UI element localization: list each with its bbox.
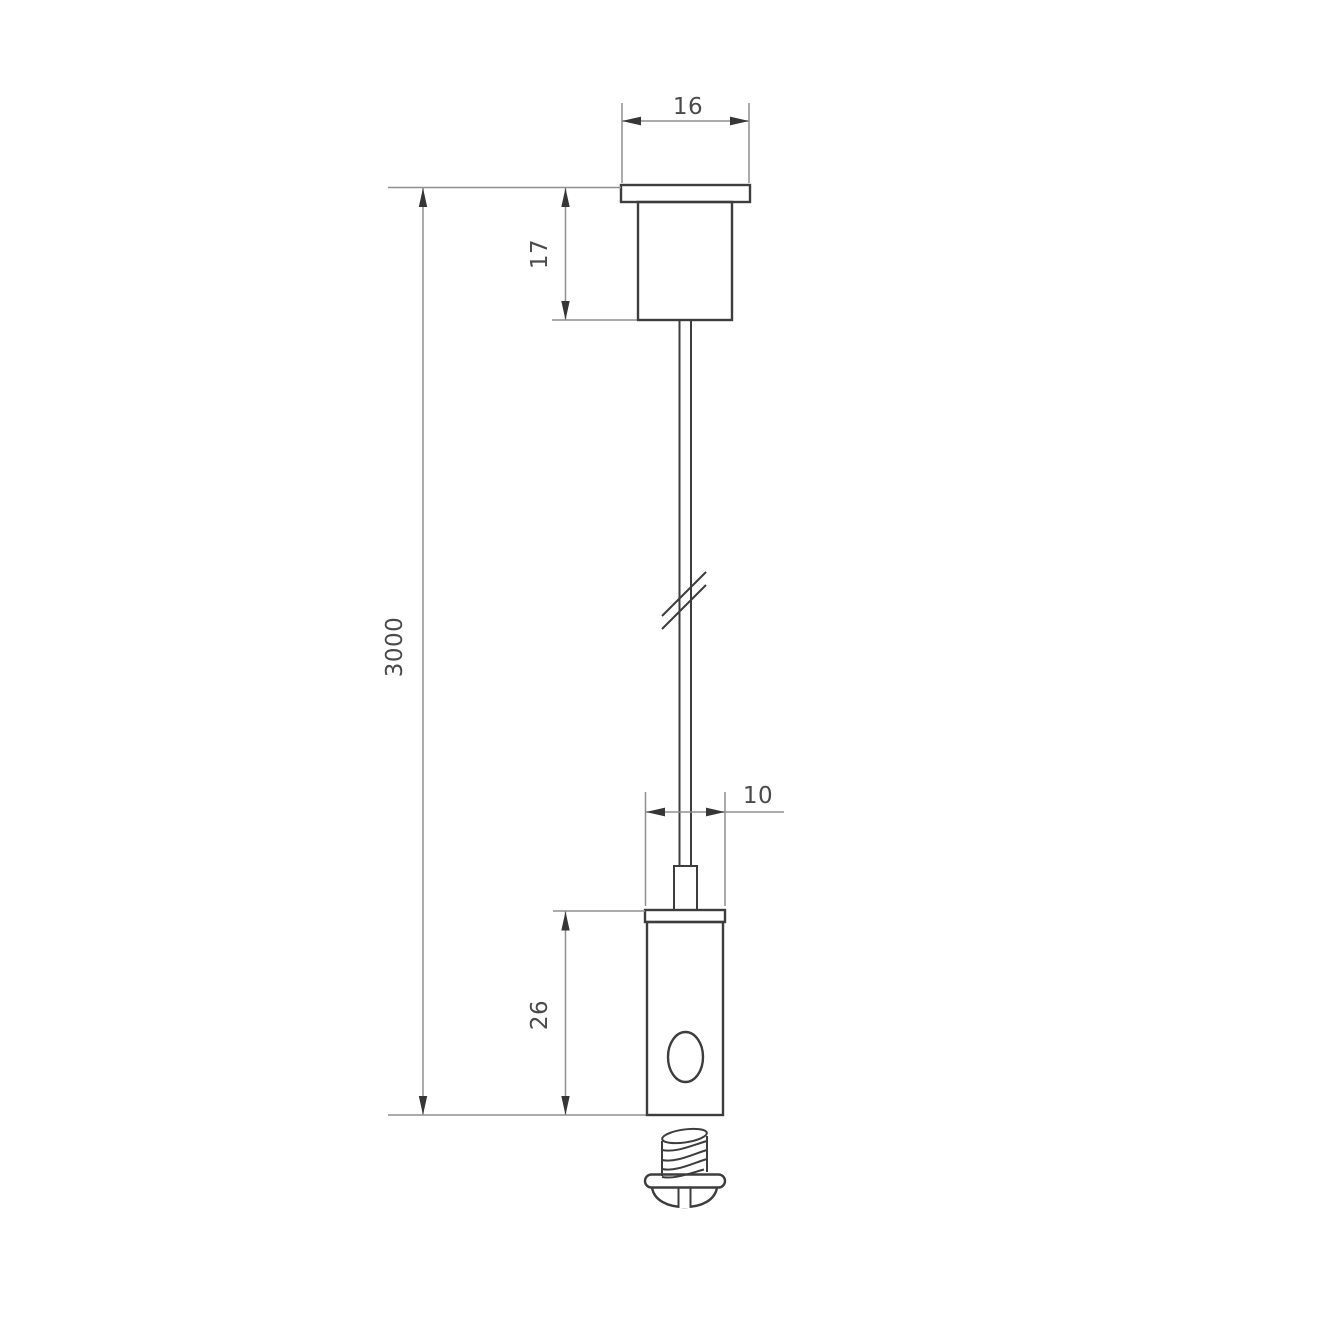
technical-drawing: 16 17 3000: [0, 0, 1331, 1331]
break-slash-upper-icon: [662, 572, 706, 616]
dimension-holder-height: 26: [527, 911, 645, 1115]
dimension-mount-height: 17: [388, 188, 637, 321]
dimension-flange-width: 16: [622, 94, 749, 183]
ceiling-flange: [621, 185, 750, 202]
dimension-label-mount-height: 17: [527, 239, 553, 269]
arrowhead-left-icon: [646, 808, 665, 817]
holder-body: [647, 922, 723, 1115]
arrowhead-down-icon: [419, 1096, 427, 1115]
drawing-canvas: 16 17 3000: [0, 0, 1331, 1331]
screw-thread: [661, 1126, 707, 1177]
arrowhead-right-icon: [706, 808, 725, 817]
mounting-screw: [645, 1126, 725, 1208]
arrowhead-down-icon: [561, 1096, 569, 1115]
holder-cap: [645, 910, 725, 922]
screw-hole: [668, 1032, 703, 1082]
break-slash-lower-icon: [662, 585, 706, 629]
screw-head-flange: [645, 1175, 725, 1188]
arrowhead-up-icon: [561, 188, 569, 207]
arrowhead-left-icon: [622, 117, 641, 126]
dimension-label-overall-length: 3000: [382, 617, 408, 678]
suspension-cable: [662, 320, 706, 866]
cable-holder: [645, 866, 725, 1115]
cable-gland: [674, 866, 697, 910]
dimension-overall-length: 3000: [382, 188, 646, 1116]
arrowhead-down-icon: [561, 301, 569, 320]
dimension-holder-diameter: 10: [646, 783, 785, 906]
ceiling-mount: [621, 185, 750, 320]
dimension-label-holder-height: 26: [527, 1000, 553, 1030]
arrowhead-right-icon: [730, 117, 749, 126]
ceiling-mount-body: [638, 202, 732, 320]
arrowhead-up-icon: [561, 912, 569, 931]
dimension-label-flange-width: 16: [673, 94, 703, 120]
screw-slot-fill: [680, 1189, 690, 1208]
dimension-label-holder-diameter: 10: [743, 783, 773, 809]
arrowhead-up-icon: [419, 188, 427, 207]
